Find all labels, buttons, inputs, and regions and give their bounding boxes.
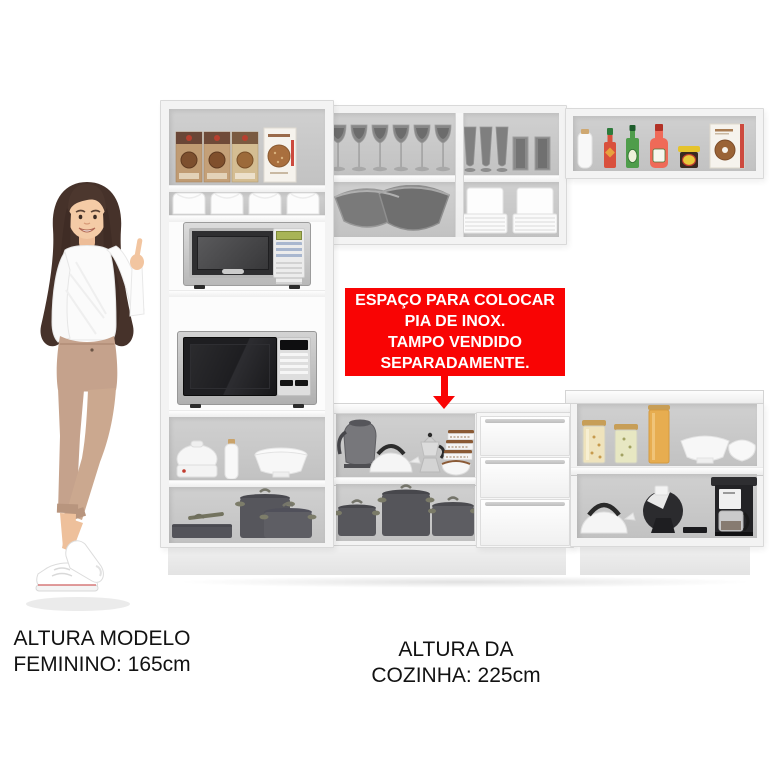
bins-shelf-interior	[169, 192, 325, 215]
product-image: ESPAÇO PARA COLOCAR PIA DE INOX. TAMPO V…	[0, 0, 780, 780]
microwave-brand-badge	[222, 269, 244, 274]
microwave-foot	[190, 404, 201, 408]
microwave-door	[183, 337, 277, 396]
cereal-shelf-interior	[169, 109, 325, 185]
model-eye	[79, 215, 83, 219]
whistling-kettle	[581, 505, 635, 533]
model-height-line1: ALTURA MODELO	[4, 626, 200, 652]
microwave-display	[280, 340, 308, 350]
upper-cabinet	[318, 105, 567, 245]
microwave-foot	[289, 285, 300, 289]
pot	[378, 486, 435, 537]
upper-cabinet-right-bottom-interior	[462, 182, 559, 237]
glass-bowls	[327, 185, 453, 237]
pan-handle	[188, 512, 224, 520]
drawer-middle	[480, 457, 570, 498]
grain-jar	[582, 420, 606, 463]
drip-coffee-maker	[711, 477, 757, 536]
microwave-control-panel	[277, 337, 311, 396]
coffee-appliances	[577, 475, 757, 537]
sink-note-line: TAMPO VENDIDO	[345, 332, 565, 353]
empty-niche	[169, 297, 325, 330]
top-right-shelf-interior	[573, 116, 756, 171]
sink-space-note: ESPAÇO PARA COLOCAR PIA DE INOX. TAMPO V…	[345, 288, 565, 376]
right-counter-upper-interior	[577, 404, 757, 466]
red-arrow-head	[433, 396, 455, 409]
sandwich-maker	[177, 441, 217, 477]
microwave-keypad	[280, 353, 308, 377]
microwave-control-panel	[273, 228, 305, 278]
plinth-left	[168, 545, 566, 575]
espresso-machine	[643, 486, 707, 533]
right-counter	[570, 402, 764, 547]
upper-cabinet-divider	[455, 113, 464, 237]
upper-cabinet-right-top-interior	[462, 113, 559, 175]
kitchen-height-caption: ALTURA DA COZINHA: 225cm	[348, 637, 564, 689]
wine-glasses	[328, 124, 454, 174]
electric-kettle	[339, 420, 376, 469]
white-bottle	[578, 132, 592, 168]
sink-note-line: PIA DE INOX.	[345, 311, 565, 332]
kitchen-height-line2: COZINHA: 225cm	[348, 663, 564, 689]
upper-cabinet-left-bottom-interior	[326, 182, 455, 237]
milk-bottle	[225, 439, 238, 479]
drawer-handle	[485, 419, 564, 423]
ware-shelf-interior	[169, 417, 325, 480]
pot	[428, 498, 474, 537]
drawer-top	[480, 416, 570, 456]
door-handle	[485, 502, 564, 506]
condiments-and-box	[574, 116, 754, 170]
serving-bowl	[442, 460, 470, 475]
microwave-keypad	[276, 262, 302, 284]
pilsner-and-tumbler-glasses	[463, 124, 557, 174]
serving-tureen	[681, 436, 729, 463]
whistling-kettle	[370, 446, 420, 472]
jars-and-bowls	[577, 405, 757, 465]
cereal-box	[204, 132, 230, 182]
cereal-boxes	[174, 114, 318, 184]
drawer-handle	[485, 460, 564, 464]
microwave-niche-1	[169, 222, 325, 290]
white-kitchenware	[171, 421, 321, 479]
microwave-window	[190, 344, 270, 389]
model-eye	[93, 215, 97, 219]
cookie-box	[710, 124, 744, 168]
microwave-door	[189, 228, 277, 278]
floor-shadow	[175, 576, 755, 588]
sink-note-line: SEPARADAMENTE.	[345, 353, 565, 374]
cereal-box	[176, 132, 202, 182]
model-arm-right-forearm	[130, 266, 144, 316]
condiment-jar	[678, 146, 700, 168]
microwave-buttons	[280, 380, 308, 386]
microwave-display	[276, 231, 302, 240]
model-height-line2: FEMININO: 165cm	[4, 652, 200, 678]
canister-set	[444, 430, 474, 460]
drawer-unit	[476, 412, 574, 548]
green-sauce-bottle	[626, 125, 639, 168]
tall-cabinet	[160, 100, 334, 548]
spaghetti-jar	[648, 405, 670, 463]
model-floor-shadow	[26, 597, 130, 611]
plate-stacks	[463, 186, 557, 236]
model-height-caption: ALTURA MODELO FEMININO: 165cm	[4, 626, 200, 678]
microwave-black	[177, 331, 317, 405]
right-countertop	[565, 390, 764, 404]
microwave-window	[197, 236, 269, 270]
sink-note-line: ESPAÇO PARA COLOCAR	[345, 290, 565, 311]
pots-shelf-interior	[169, 487, 325, 543]
soup-tureen	[255, 448, 307, 477]
cereal-box	[232, 132, 258, 182]
pots-and-pans	[170, 488, 322, 542]
top-right-open-shelf	[565, 108, 764, 179]
stock-pots-middle	[336, 484, 474, 540]
model-pointing-finger	[134, 238, 142, 259]
microwave-buttons	[276, 242, 302, 260]
food-storage-bins	[171, 191, 321, 215]
upper-cabinet-left-top-interior	[326, 113, 455, 175]
microwave-foot	[194, 285, 205, 289]
hot-sauce-bottle	[604, 128, 616, 168]
kitchen-height-line1: ALTURA DA	[348, 637, 564, 663]
kettles-and-canisters	[336, 414, 474, 476]
female-model	[8, 174, 168, 614]
right-counter-lower-interior	[577, 474, 757, 538]
cabinet-door	[480, 499, 570, 546]
microwave-niche-2	[169, 330, 325, 410]
cracker-box	[264, 128, 296, 182]
model-sneaker-sole	[36, 585, 98, 591]
pot	[336, 501, 380, 537]
grain-jar	[614, 424, 638, 463]
serving-bowl	[729, 440, 755, 461]
ketchup-bottle	[650, 124, 668, 168]
plinth-right	[580, 544, 750, 575]
moka-pot	[420, 433, 444, 472]
red-arrow-stem	[441, 376, 448, 397]
counter-lower-interior	[336, 484, 475, 541]
model-pants-button	[90, 348, 93, 351]
counter-upper-interior	[336, 413, 475, 477]
microwave-foot	[293, 404, 304, 408]
middle-counter-open-section	[330, 412, 478, 548]
microwave-silver	[183, 222, 311, 286]
